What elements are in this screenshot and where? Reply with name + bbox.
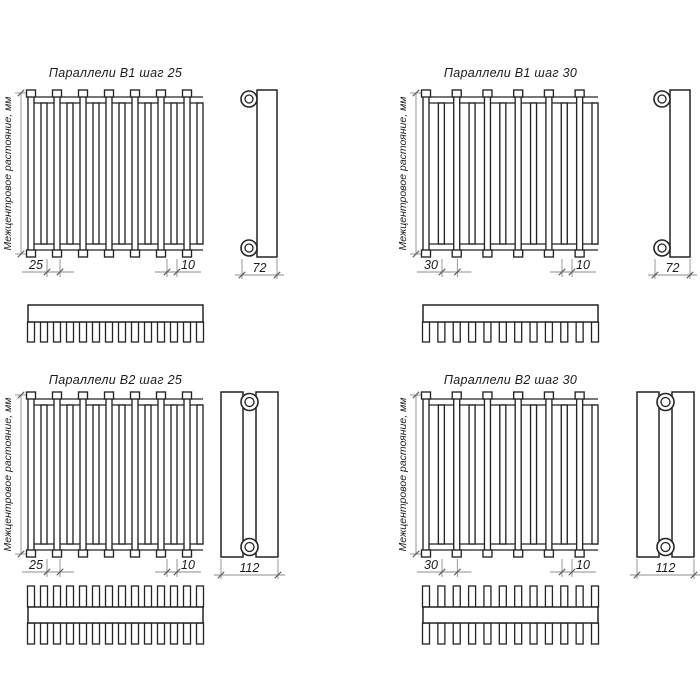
pitch-dimension-value: 30 bbox=[424, 558, 438, 572]
panel-b2-step30: Параллели В2 шаг 30Межцентровое растояни… bbox=[397, 373, 700, 644]
panel-title: Параллели В2 шаг 25 bbox=[49, 373, 182, 387]
center-distance-label: Межцентровое растояние, мм bbox=[397, 398, 409, 552]
tube-width-dimension-value: 10 bbox=[181, 558, 195, 572]
top-view bbox=[28, 586, 204, 644]
panel-title: Параллели В2 шаг 30 bbox=[444, 373, 577, 387]
top-view bbox=[28, 305, 204, 342]
pitch-dimension-value: 25 bbox=[28, 558, 43, 572]
panel-title: Параллели В1 шаг 30 bbox=[444, 66, 577, 80]
front-view bbox=[422, 392, 599, 557]
center-distance-label: Межцентровое растояние, мм bbox=[2, 97, 14, 251]
front-dimensions: 2510 bbox=[22, 258, 201, 277]
front-view bbox=[422, 90, 599, 257]
center-distance-dimension: Межцентровое растояние, мм bbox=[2, 392, 27, 557]
front-dimensions: 3010 bbox=[417, 258, 596, 277]
center-distance-dimension: Межцентровое растояние, мм bbox=[397, 392, 422, 557]
front-view bbox=[27, 392, 204, 557]
side-view: 112 bbox=[630, 392, 700, 579]
panel-b1-step30: Параллели В1 шаг 30Межцентровое растояни… bbox=[397, 66, 697, 342]
depth-dimension-value: 112 bbox=[656, 561, 676, 575]
top-view bbox=[423, 305, 599, 342]
front-dimensions: 3010 bbox=[417, 558, 596, 577]
tube-width-dimension-value: 10 bbox=[576, 558, 590, 572]
top-view bbox=[423, 586, 599, 644]
side-view: 112 bbox=[214, 392, 285, 579]
pitch-dimension-value: 25 bbox=[28, 258, 43, 272]
center-distance-dimension: Межцентровое растояние, мм bbox=[397, 90, 422, 257]
pitch-dimension-value: 30 bbox=[424, 258, 438, 272]
side-view: 72 bbox=[648, 90, 697, 279]
drawing-sheet: Параллели В1 шаг 25Межцентровое растояни… bbox=[0, 0, 700, 700]
depth-dimension-value: 72 bbox=[666, 261, 680, 275]
center-distance-label: Межцентровое растояние, мм bbox=[397, 97, 409, 251]
front-dimensions: 2510 bbox=[22, 558, 201, 577]
radiator-drawing-canvas: Параллели В1 шаг 25Межцентровое растояни… bbox=[0, 0, 700, 700]
tube-width-dimension-value: 10 bbox=[576, 258, 590, 272]
center-distance-dimension: Межцентровое растояние, мм bbox=[2, 90, 27, 257]
panel-b1-step25: Параллели В1 шаг 25Межцентровое растояни… bbox=[2, 66, 284, 342]
tube-width-dimension-value: 10 bbox=[181, 258, 195, 272]
depth-dimension-value: 112 bbox=[240, 561, 260, 575]
front-view bbox=[27, 90, 204, 257]
side-view: 72 bbox=[235, 90, 284, 279]
depth-dimension-value: 72 bbox=[253, 261, 267, 275]
panel-b2-step25: Параллели В2 шаг 25Межцентровое растояни… bbox=[2, 373, 285, 644]
panel-title: Параллели В1 шаг 25 bbox=[49, 66, 182, 80]
center-distance-label: Межцентровое растояние, мм bbox=[2, 398, 14, 552]
